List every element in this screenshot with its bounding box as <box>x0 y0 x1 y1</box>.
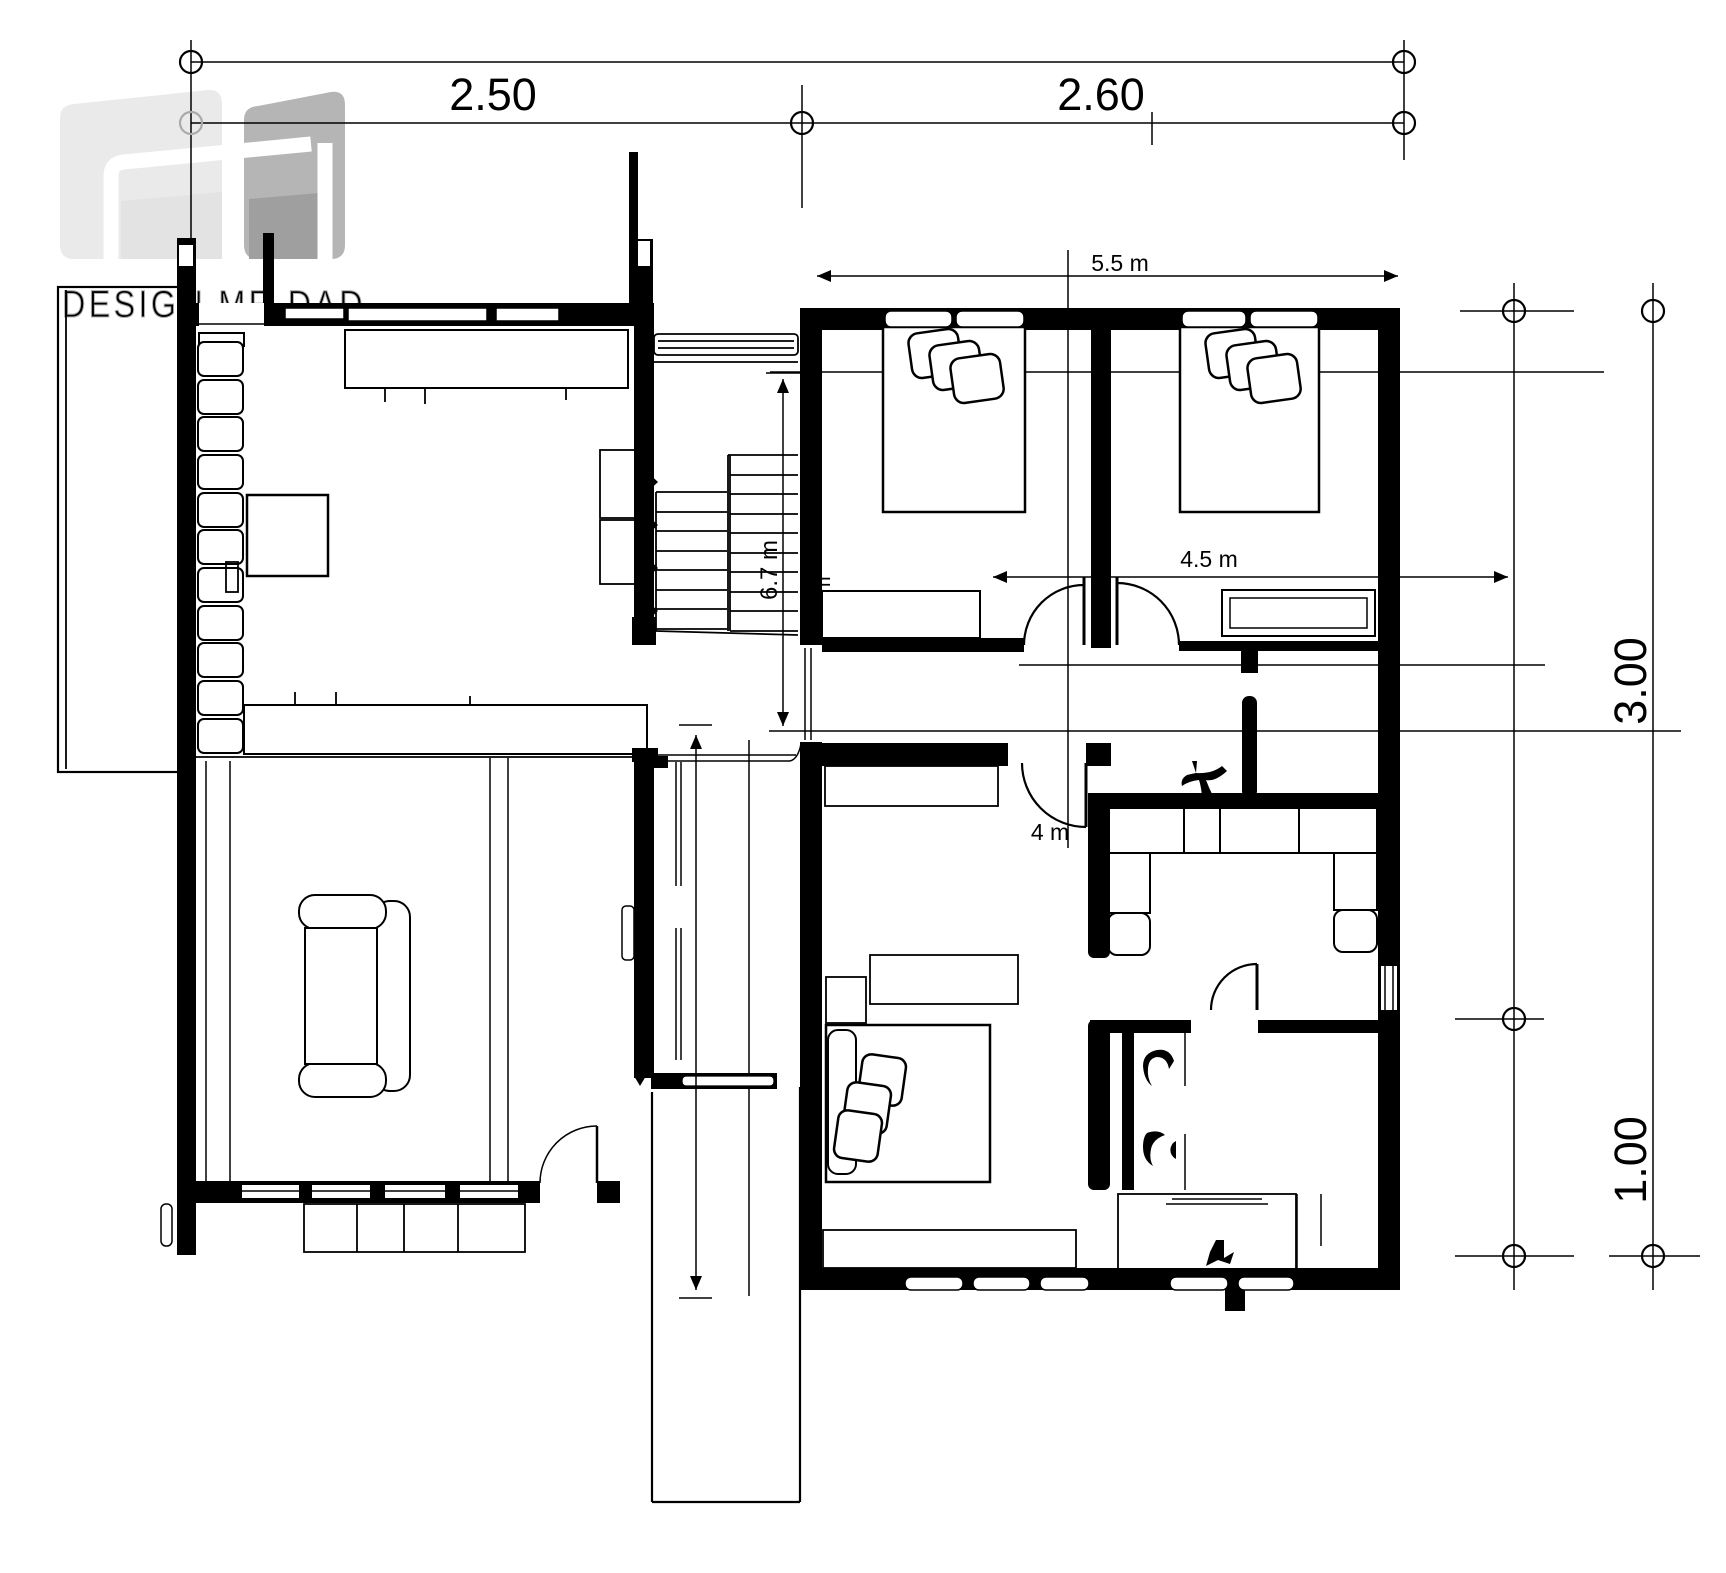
svg-text:6.7 m: 6.7 m <box>756 540 783 600</box>
svg-text:4 m: 4 m <box>1031 819 1069 845</box>
svg-text:4.5 m: 4.5 m <box>1180 546 1238 572</box>
svg-text:5.5 m: 5.5 m <box>1091 250 1149 276</box>
svg-text:1.00: 1.00 <box>1605 1116 1656 1204</box>
svg-text:3.00: 3.00 <box>1605 637 1656 725</box>
svg-text:2.60: 2.60 <box>1057 69 1145 120</box>
svg-text:2.50: 2.50 <box>449 69 537 120</box>
